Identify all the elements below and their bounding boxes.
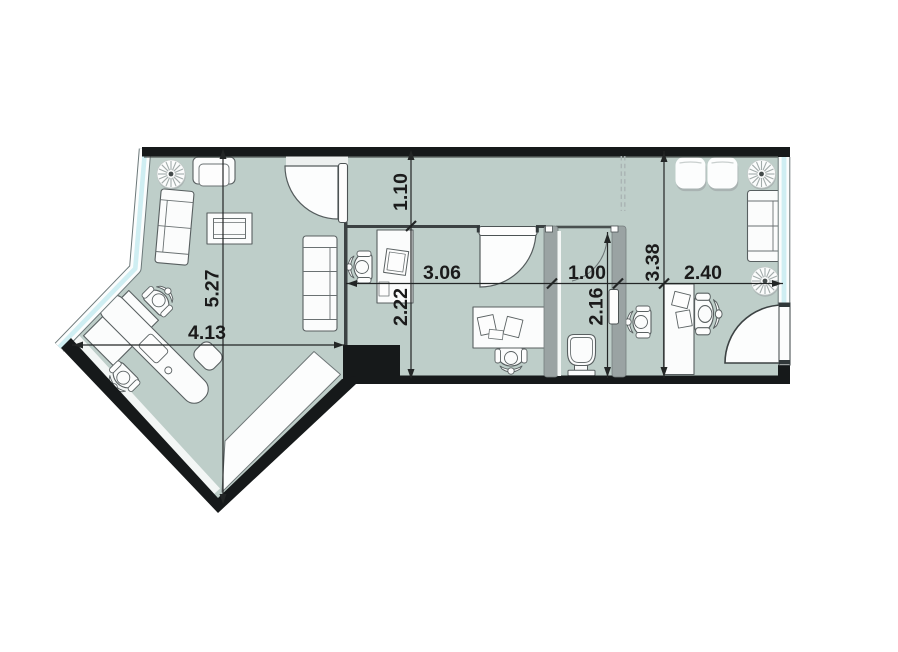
svg-text:2.22: 2.22 [390,288,412,326]
svg-text:1.10: 1.10 [390,173,412,211]
svg-text:2.40: 2.40 [684,262,722,284]
svg-text:1.00: 1.00 [568,262,606,284]
svg-text:2.16: 2.16 [586,287,608,325]
svg-text:3.38: 3.38 [642,243,664,281]
svg-text:3.06: 3.06 [423,262,461,284]
svg-text:4.13: 4.13 [188,322,226,344]
svg-text:5.27: 5.27 [202,270,224,308]
